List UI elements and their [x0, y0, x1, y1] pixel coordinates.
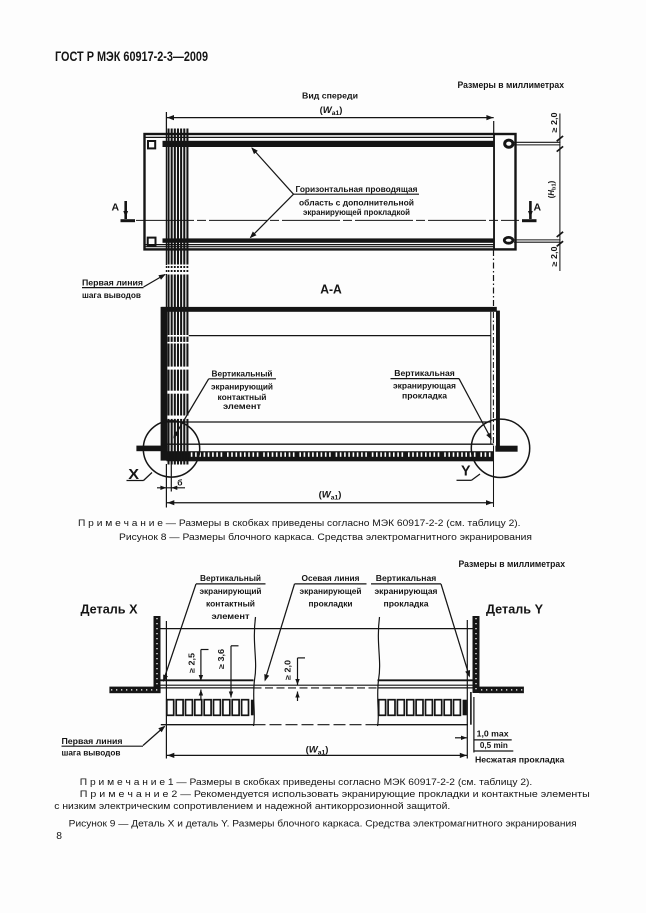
svg-text:≥ 2,0: ≥ 2,0 — [550, 246, 559, 267]
svg-text:1,0 max: 1,0 max — [477, 730, 509, 739]
svg-text:Несжатая прокладка: Несжатая прокладка — [475, 756, 565, 765]
svg-text:элемент: элемент — [223, 402, 261, 411]
svg-text:контактный: контактный — [218, 393, 267, 402]
svg-text:П р и м е ч а н и е — Размеры: П р и м е ч а н и е — Размеры в скобках … — [78, 518, 521, 528]
svg-text:Вертикальный: Вертикальный — [212, 370, 273, 379]
svg-text:Деталь Y: Деталь Y — [486, 602, 544, 616]
svg-text:≥ 2,0: ≥ 2,0 — [283, 659, 292, 680]
svg-text:экранирующая: экранирующая — [375, 587, 438, 596]
svg-text:Горизонтальная проводящая: Горизонтальная проводящая — [296, 185, 418, 194]
svg-text:прокладка: прокладка — [402, 392, 448, 401]
svg-text:область с дополнительной: область с дополнительной — [299, 199, 414, 208]
svg-text:8: 8 — [56, 831, 62, 842]
svg-text:Вид спереди: Вид спереди — [302, 91, 358, 101]
svg-text:элемент: элемент — [212, 612, 250, 621]
svg-text:Рисунок 9 — Деталь X и деталь: Рисунок 9 — Деталь X и деталь Y. Размеры… — [69, 819, 577, 829]
svg-text:Рисунок 8 — Размеры блочного к: Рисунок 8 — Размеры блочного каркаса. Ср… — [119, 532, 532, 542]
svg-text:с низким электрическим сопроти: с низким электрическим сопротивлением и … — [54, 801, 450, 811]
svg-text:прокладки: прокладки — [309, 599, 353, 608]
svg-text:(Wа1): (Wа1) — [319, 490, 342, 502]
svg-text:Размеры в миллиметрах: Размеры в миллиметрах — [458, 80, 565, 90]
svg-text:б: б — [177, 477, 182, 487]
svg-text:Первая линия: Первая линия — [62, 737, 123, 746]
svg-text:экранирующий: экранирующий — [211, 383, 273, 392]
svg-text:Y: Y — [461, 463, 471, 479]
svg-text:A: A — [112, 202, 120, 214]
svg-text:Первая линия: Первая линия — [82, 278, 143, 287]
svg-text:П р и м е ч а н и е 2 — Реком: П р и м е ч а н и е 2 — Рекомендуется ис… — [80, 789, 590, 799]
svg-text:Размеры в миллиметрах: Размеры в миллиметрах — [459, 559, 566, 569]
svg-text:≥ 3,6: ≥ 3,6 — [217, 648, 226, 669]
svg-text:шага выводов: шага выводов — [62, 749, 121, 758]
svg-text:прокладка: прокладка — [384, 599, 430, 608]
svg-text:экранирующий: экранирующий — [200, 587, 262, 596]
svg-text:ГОСТ Р МЭК 60917-2-3—2009: ГОСТ Р МЭК 60917-2-3—2009 — [55, 49, 208, 64]
svg-text:(Hb1): (Hb1) — [547, 180, 558, 198]
svg-text:Вертикальная: Вертикальная — [376, 574, 437, 583]
svg-text:≥ 2,5: ≥ 2,5 — [187, 652, 196, 673]
svg-text:≥ 2,0: ≥ 2,0 — [550, 112, 559, 133]
svg-text:0,5 min: 0,5 min — [480, 741, 508, 750]
svg-text:А-А: А-А — [320, 283, 342, 297]
svg-text:Деталь X: Деталь X — [81, 603, 139, 617]
svg-text:экранирующей прокладкой: экранирующей прокладкой — [303, 208, 410, 217]
svg-text:шага выводов: шага выводов — [82, 291, 141, 300]
svg-text:Вертикальный: Вертикальный — [200, 574, 261, 583]
svg-text:A: A — [534, 202, 542, 214]
svg-text:Вертикальная: Вертикальная — [394, 369, 455, 378]
svg-text:П р и м е ч а н и е 1 — Разме: П р и м е ч а н и е 1 — Размеры в скобка… — [80, 777, 533, 787]
svg-text:Осевая линия: Осевая линия — [302, 574, 360, 583]
svg-text:экранирующая: экранирующая — [393, 381, 456, 390]
svg-text:(Wа1): (Wа1) — [306, 745, 329, 757]
svg-text:(Wа1): (Wа1) — [320, 105, 343, 117]
svg-text:экранирующей: экранирующей — [300, 587, 362, 596]
svg-text:контактный: контактный — [206, 599, 255, 608]
